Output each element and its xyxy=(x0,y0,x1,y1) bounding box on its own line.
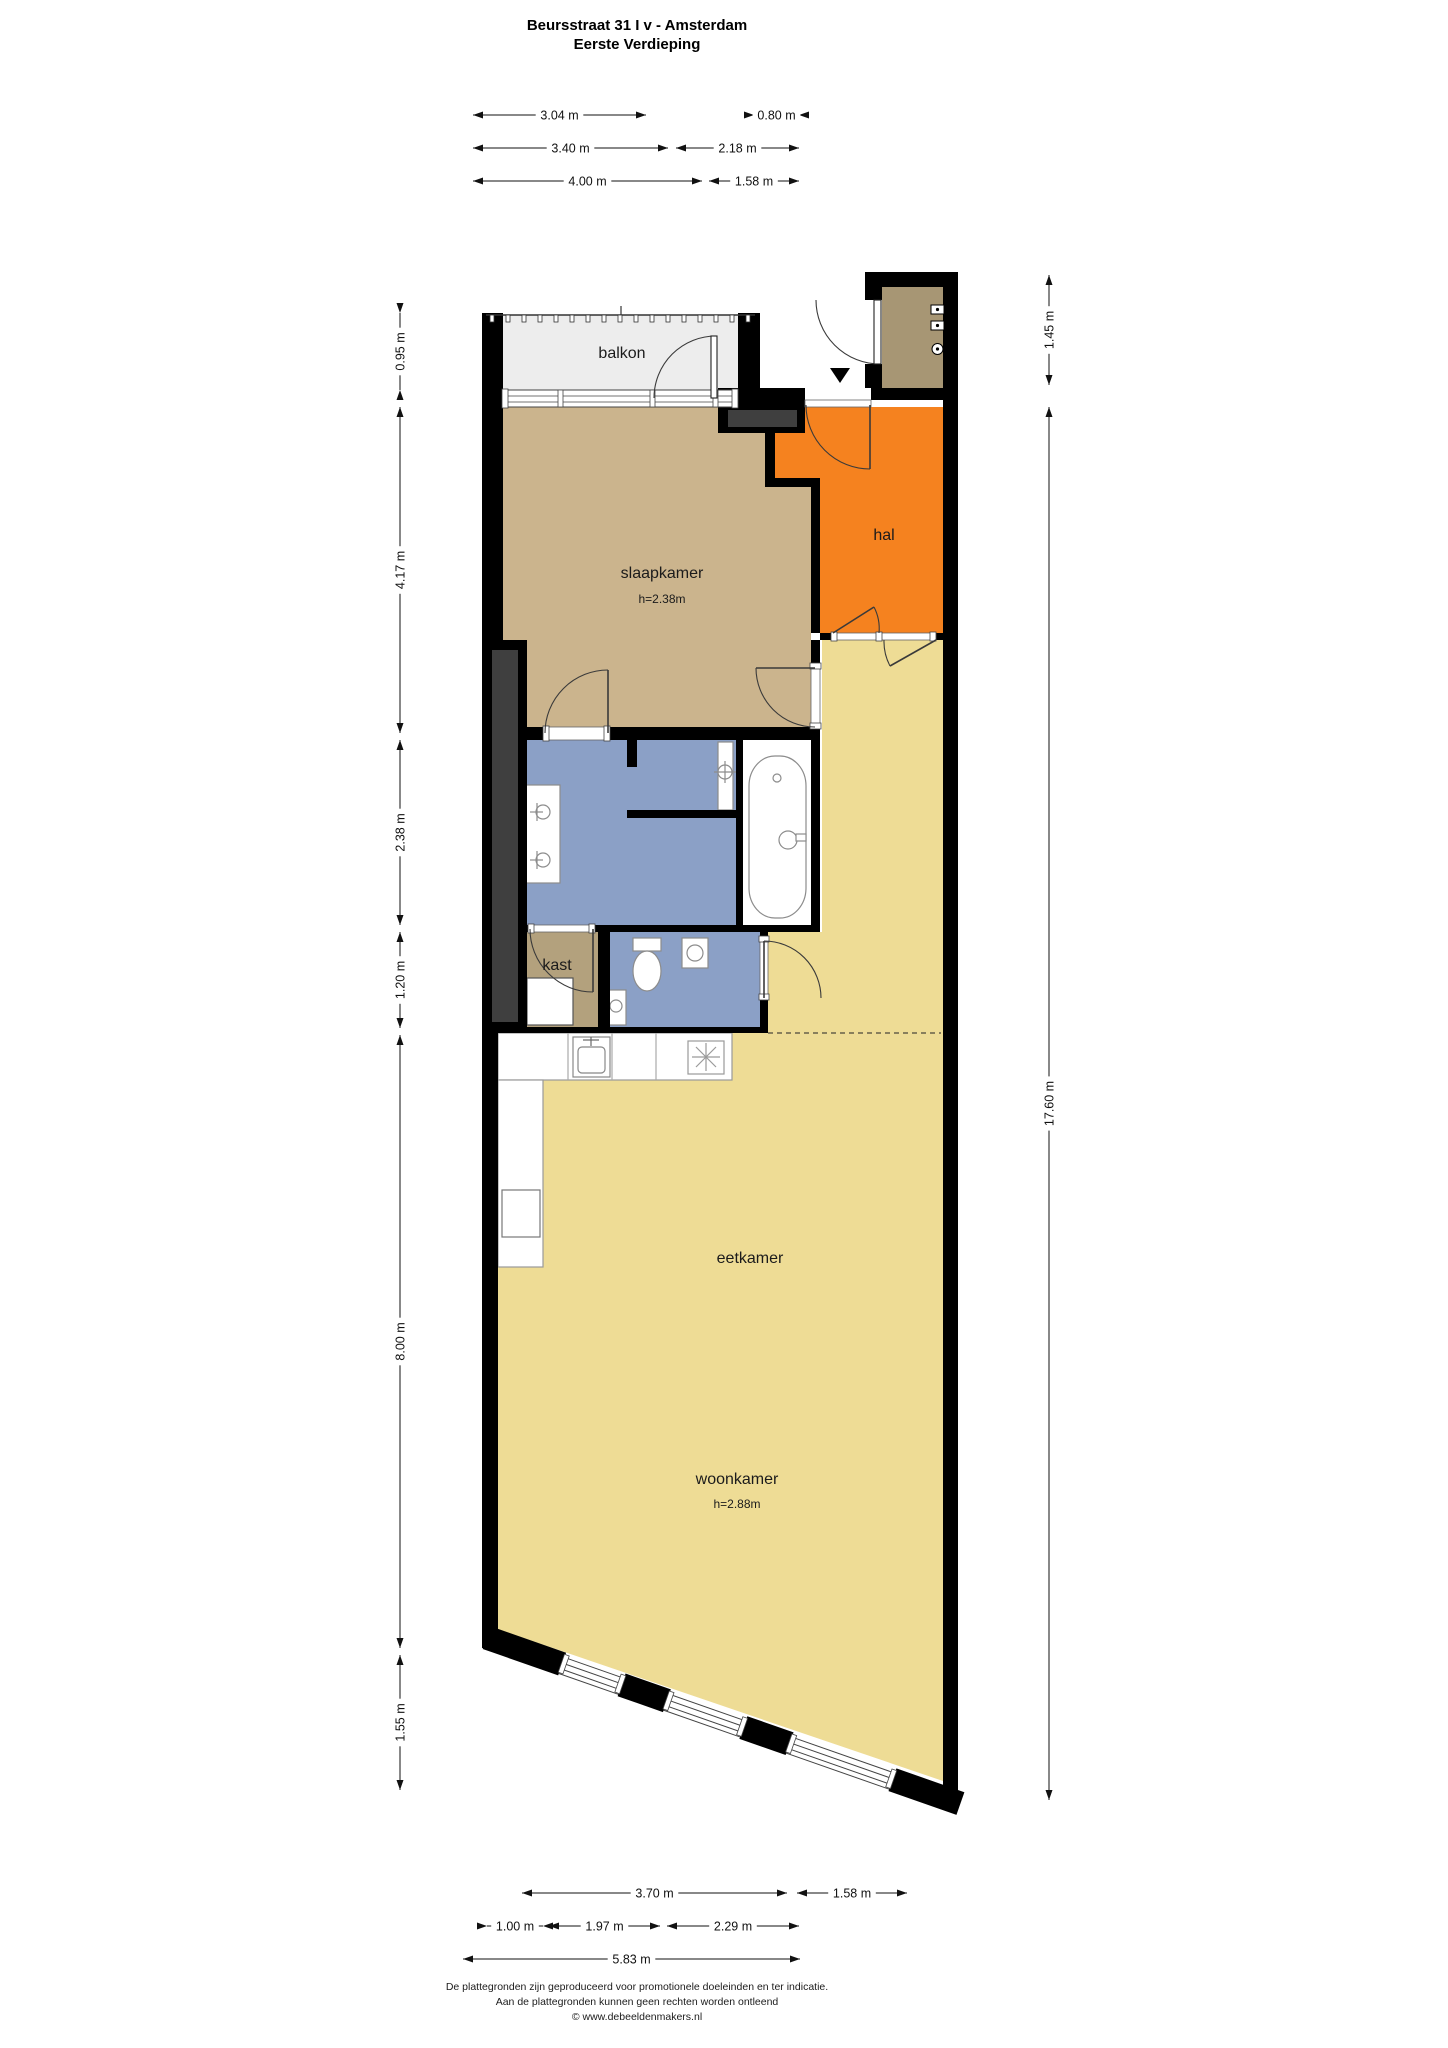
dimension-label: 0.80 m xyxy=(757,109,795,123)
dimension-arrow xyxy=(1046,375,1053,385)
dimension: 4.00 m xyxy=(473,173,702,189)
plan-title: Beursstraat 31 I v - Amsterdam Eerste Ve… xyxy=(0,16,1274,54)
dimension: 0.80 m xyxy=(744,107,809,123)
dimension: 1.20 m xyxy=(392,932,408,1028)
dimension-label: 1.20 m xyxy=(394,961,408,999)
dimension-label: 1.45 m xyxy=(1043,311,1057,349)
dimension-label: 8.00 m xyxy=(394,1322,408,1360)
entry-closet-floor xyxy=(882,287,943,388)
plan-footer: De plattegronden zijn geproduceerd voor … xyxy=(0,1980,1274,2025)
footer-disclaimer-2: Aan de plattegronden kunnen geen rechten… xyxy=(0,1995,1274,2010)
dimension-arrow xyxy=(1046,1790,1053,1800)
dimension-arrow xyxy=(1046,407,1053,417)
dimension: 1.55 m xyxy=(392,1655,408,1790)
dimension-arrow xyxy=(397,915,404,925)
door-leaf xyxy=(874,300,881,364)
title-address: Beursstraat 31 I v - Amsterdam xyxy=(0,16,1274,35)
dimension-arrow xyxy=(477,1923,487,1930)
dimension-arrow xyxy=(397,932,404,942)
room-label-eetkamer: eetkamer xyxy=(717,1250,784,1267)
dimension-arrow xyxy=(397,1655,404,1665)
bathtub-faucet-spout xyxy=(796,834,806,841)
dimension: 3.40 m xyxy=(473,140,668,156)
dimension-arrow xyxy=(658,145,668,152)
room-label-woonkamer: woonkamer xyxy=(695,1471,779,1488)
dimension: 8.00 m xyxy=(392,1035,408,1648)
dimension: 1.00 m xyxy=(477,1918,553,1934)
dimension: 3.70 m xyxy=(522,1885,787,1901)
title-floor: Eerste Verdieping xyxy=(0,35,1274,54)
room-label-balkon: balkon xyxy=(598,345,645,362)
dimension-arrow xyxy=(709,178,719,185)
toilet-tank xyxy=(633,938,661,951)
bathtub-faucet-icon xyxy=(779,831,797,849)
corridor-bedroom-doorway xyxy=(810,663,821,729)
dimension-arrow xyxy=(473,145,483,152)
dimension-arrow xyxy=(797,1890,807,1897)
dimension-label: 5.83 m xyxy=(612,1953,650,1967)
dimension-arrow xyxy=(636,112,646,119)
dimension-arrow xyxy=(397,740,404,750)
dimension-arrow xyxy=(1046,275,1053,285)
dimension: 1.97 m xyxy=(549,1918,660,1934)
dimension: 1.58 m xyxy=(709,173,799,189)
closet-shelf xyxy=(527,978,573,1025)
door-leaf xyxy=(711,336,717,398)
hall-doorway xyxy=(805,400,871,407)
dimension-arrow xyxy=(789,145,799,152)
dimension: 1.58 m xyxy=(797,1885,907,1901)
dimension-arrow xyxy=(676,145,686,152)
balcony-railing xyxy=(486,306,755,315)
dimension-arrow xyxy=(650,1923,660,1930)
dimension: 2.18 m xyxy=(676,140,799,156)
dimension-label: 2.18 m xyxy=(718,142,756,156)
meter-icons xyxy=(931,305,944,355)
dimension-label: 2.38 m xyxy=(394,813,408,851)
dimension-arrow xyxy=(397,1638,404,1648)
dimension: 0.95 m xyxy=(392,303,408,400)
dimension-arrow xyxy=(463,1956,473,1963)
hall-bottom-doorway xyxy=(831,632,936,641)
footer-disclaimer-1: De plattegronden zijn geproduceerd voor … xyxy=(0,1980,1274,1995)
dimension-arrow xyxy=(799,112,809,119)
room-height-label-slaapkamer: h=2.38m xyxy=(638,592,685,606)
dimension-arrow xyxy=(397,723,404,733)
dimension-label: 3.04 m xyxy=(540,109,578,123)
bedroom-bathroom-doorway xyxy=(543,726,610,741)
dimension-arrow xyxy=(522,1890,532,1897)
dimension-arrow xyxy=(473,112,483,119)
dimension-arrow xyxy=(397,390,404,400)
dimension-label: 0.95 m xyxy=(394,332,408,370)
dimension-label: 1.58 m xyxy=(833,1887,871,1901)
room-label-hal: hal xyxy=(873,527,894,544)
dimension-label: 1.97 m xyxy=(585,1920,623,1934)
entrance-arrow-icon xyxy=(830,368,850,383)
room-label-slaapkamer: slaapkamer xyxy=(621,565,704,582)
closet-doorway xyxy=(528,924,595,933)
dimension-label: 1.00 m xyxy=(496,1920,534,1934)
dimension-arrow xyxy=(692,178,702,185)
dimension-arrow xyxy=(789,1923,799,1930)
dimension-label: 3.40 m xyxy=(551,142,589,156)
dimension-label: 4.00 m xyxy=(568,175,606,189)
footer-copyright: © www.debeeldenmakers.nl xyxy=(0,2010,1274,2025)
dimension-arrow xyxy=(777,1890,787,1897)
vanity-icon xyxy=(525,785,560,883)
dimension-arrow xyxy=(744,112,754,119)
dimension: 17.60 m xyxy=(1041,407,1057,1800)
duct-shaft xyxy=(492,650,518,1022)
dimension: 4.17 m xyxy=(392,407,408,733)
dimension: 2.38 m xyxy=(392,740,408,925)
dimension-arrow xyxy=(473,178,483,185)
balcony-window xyxy=(502,389,738,408)
room-height-label-woonkamer: h=2.88m xyxy=(713,1497,760,1511)
dimension: 2.29 m xyxy=(667,1918,799,1934)
cooktop-icon xyxy=(688,1041,724,1074)
tall-cabinet xyxy=(498,1080,543,1267)
dimension-arrow xyxy=(397,1780,404,1790)
dimension-arrow xyxy=(397,407,404,417)
toilet-icon xyxy=(633,951,661,991)
door-arc xyxy=(816,300,880,364)
dimension-label: 3.70 m xyxy=(635,1887,673,1901)
dimension-label: 1.58 m xyxy=(735,175,773,189)
dimension-arrow xyxy=(897,1890,907,1897)
dimension-label: 4.17 m xyxy=(394,551,408,589)
dimension-arrow xyxy=(790,1956,800,1963)
fridge-icon xyxy=(502,1190,540,1237)
dimension-arrow xyxy=(667,1923,677,1930)
dimension-arrow xyxy=(789,178,799,185)
dimension-arrow xyxy=(397,1018,404,1028)
dimension-label: 2.29 m xyxy=(714,1920,752,1934)
dimension-arrow xyxy=(397,303,404,313)
dimension: 1.45 m xyxy=(1041,275,1057,385)
dimension: 3.04 m xyxy=(473,107,646,123)
dimension: 5.83 m xyxy=(463,1951,800,1967)
dimension-arrow xyxy=(397,1035,404,1045)
dimension-label: 17.60 m xyxy=(1043,1081,1057,1126)
dimension-label: 1.55 m xyxy=(394,1703,408,1741)
duct-shaft xyxy=(728,410,797,427)
room-label-kast: kast xyxy=(542,957,572,974)
bathtub-drain-icon xyxy=(773,774,781,782)
floor-plan: balkonslaapkamerh=2.38mhalkasteetkamerwo… xyxy=(0,0,1448,2048)
